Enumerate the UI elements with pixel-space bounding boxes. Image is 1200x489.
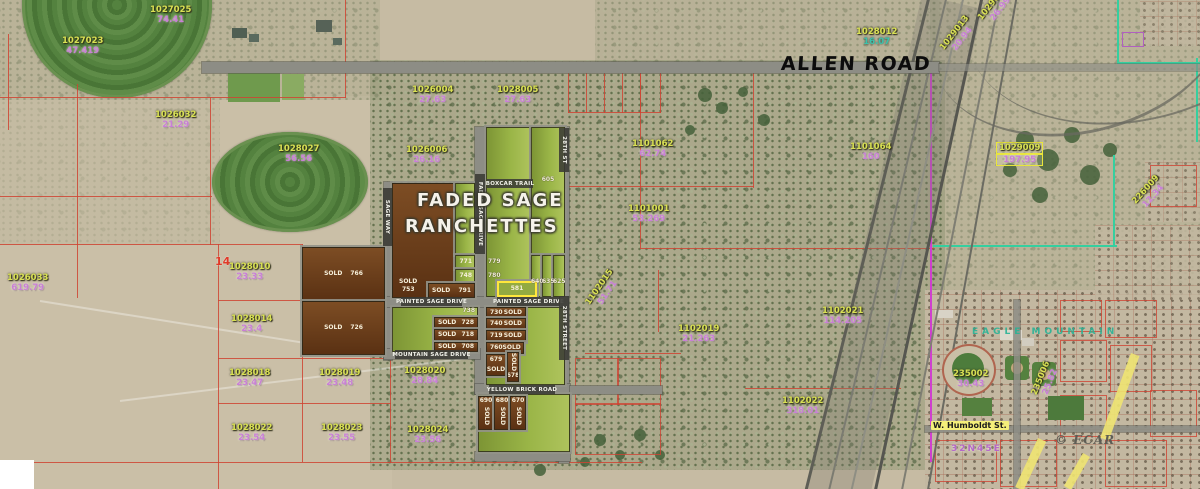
parcel-id: 1027023 xyxy=(62,36,103,46)
street-name: PAINTED SAGE DRIVE xyxy=(493,299,564,305)
parcel-boundary-line xyxy=(586,68,587,113)
street-label: PAINTED SAGE DRIVE xyxy=(401,297,462,306)
parcel-acreage: 21.263 xyxy=(678,334,719,344)
street-label: FADED SAGE DRIVE xyxy=(475,174,485,254)
lot-number: 679 xyxy=(490,357,503,363)
subdivision-lot: 690SOLD xyxy=(478,396,494,430)
parcel-acreage: 23.47 xyxy=(229,378,270,388)
parcel-id: 1026006 xyxy=(406,145,447,155)
parcel-label: 1102022318.01 xyxy=(782,396,823,416)
street-name: PAINTED SAGE DRIVE xyxy=(396,299,467,305)
parcel-label: 102802423.56 xyxy=(407,425,448,445)
parcel-acreage: 30.43 xyxy=(953,379,989,389)
road xyxy=(939,64,1200,71)
road xyxy=(570,386,662,394)
lot-number: 748 xyxy=(459,273,472,279)
parcel-boundary-line xyxy=(640,68,641,113)
parcel-id: 1026004 xyxy=(412,85,453,95)
subdivision-lot: 730SOLD xyxy=(486,307,526,318)
parcel-id: 1028020 xyxy=(404,366,445,376)
parcel-id: 1028027 xyxy=(278,144,319,154)
subdivision-lot: 670SOLD xyxy=(510,396,526,430)
subdivision-lot: SOLD766 xyxy=(302,247,385,301)
parcel-acreage: 197.95 xyxy=(996,154,1043,166)
lot-number: 728 xyxy=(461,320,474,326)
farm-building xyxy=(316,20,332,32)
subdivision-title-line1: FADED SAGE xyxy=(417,190,564,211)
parcel-label: 110100153.269 xyxy=(628,204,669,224)
farm-building xyxy=(249,34,259,42)
parcel-acreage: 53.269 xyxy=(628,214,669,224)
subdivision-lot: SOLD718 xyxy=(434,329,478,341)
parcel-boundary-line xyxy=(658,270,659,332)
street-label: BOXCAR TRAIL xyxy=(487,179,533,188)
tree xyxy=(758,114,770,126)
parcel-boundary-line xyxy=(753,70,754,188)
tree xyxy=(685,125,695,135)
sold-label: SOLD xyxy=(504,321,522,327)
parcel-id: 1029009 xyxy=(996,142,1043,154)
parcel-label: 102802323.55 xyxy=(321,423,362,443)
parcel-label: 102801216.07 xyxy=(856,27,897,47)
parcel-boundary-line xyxy=(0,196,212,197)
parcel-acreage: 27.63 xyxy=(497,95,538,105)
street-label: MOUNTAIN SAGE DRIVE xyxy=(395,350,468,359)
lot-number: 780 xyxy=(488,273,508,279)
parcel-label: 102802223.54 xyxy=(231,423,272,443)
sold-label: SOLD xyxy=(399,279,417,285)
farm-building xyxy=(333,38,342,45)
parcel-boundary-line xyxy=(218,403,391,404)
parcel-boundary-line xyxy=(0,462,642,463)
parcel-boundary-rect xyxy=(1060,340,1107,382)
lot-number: 718 xyxy=(461,332,474,338)
parcel-id: 1028018 xyxy=(229,368,270,378)
street-label: PAINTED SAGE DRIVE xyxy=(497,297,560,306)
lot-number: 678 xyxy=(507,373,519,379)
street-name: BOXCAR TRAIL xyxy=(486,181,535,187)
sold-label: SOLD xyxy=(483,407,489,425)
street-name: MOUNTAIN SAGE DRIVE xyxy=(392,352,470,358)
sold-label: SOLD xyxy=(438,332,456,338)
tree xyxy=(698,88,712,102)
parcel-label: 1026033619.79 xyxy=(7,273,48,293)
parcel-acreage: 21.29 xyxy=(155,120,196,130)
lot-number: 625 xyxy=(553,279,565,285)
sold-label: SOLD xyxy=(487,367,505,373)
parcel-acreage: 27.63 xyxy=(412,95,453,105)
subdivision-lot: 680SOLD xyxy=(494,396,510,430)
lot-number: 690 xyxy=(480,398,493,404)
street-label: YELLOW BRICK ROAD xyxy=(489,385,555,394)
parcel-id: 1102019 xyxy=(678,324,719,334)
parcel-boundary-line xyxy=(0,97,346,98)
sold-label: SOLD xyxy=(503,345,521,351)
lot-number: 779 xyxy=(488,259,508,265)
parcel-acreage: 114.205 xyxy=(822,316,863,326)
street-label: 28TH ST xyxy=(559,128,569,172)
parcel-boundary-line xyxy=(660,68,661,113)
subdivision-title-line2: RANCHETTES xyxy=(405,216,559,237)
parcel-label: 102801823.47 xyxy=(229,368,270,388)
subdivision-lot xyxy=(553,255,565,297)
lot-number: 738 xyxy=(448,308,475,314)
parcel-boundary-line xyxy=(210,97,211,245)
lot-number: 605 xyxy=(531,177,565,183)
parcel-acreage: 23.56 xyxy=(407,435,448,445)
street-name: 28TH ST xyxy=(561,136,567,164)
lot-number: 771 xyxy=(459,259,472,265)
parcel-id: 1028014 xyxy=(231,314,272,324)
parcel-id: 1102021 xyxy=(822,306,863,316)
tree xyxy=(716,102,728,114)
parcel-label: 102801023.33 xyxy=(229,262,270,282)
map-canvas[interactable]: ALLEN ROAD FADED SAGE RANCHETTES EAGLE M… xyxy=(0,0,1200,489)
subdivision-lot: 771 xyxy=(455,255,475,269)
subdivision-lot: SOLD726 xyxy=(302,301,385,355)
parcel-acreage: 619.79 xyxy=(7,283,48,293)
lot-number: 730 xyxy=(490,310,503,316)
parcel-acreage: 23.4 xyxy=(231,324,272,334)
parcel-id: 1028022 xyxy=(231,423,272,433)
school-building xyxy=(1022,338,1034,346)
parcel-acreage: 47.419 xyxy=(62,46,103,56)
lot-number: 753 xyxy=(402,287,415,293)
street-label: 28TH STREET xyxy=(559,296,569,360)
parcel-boundary-line xyxy=(390,358,391,462)
parcel-id: 1101064 xyxy=(850,142,891,152)
subdivision-lot xyxy=(542,255,553,297)
parcel-boundary-line xyxy=(77,84,78,298)
parcel-label: 102802756.56 xyxy=(278,144,319,164)
parcel-boundary-line xyxy=(565,186,754,187)
parcel-boundary-line xyxy=(345,0,346,98)
parcel-acreage: 318.01 xyxy=(782,406,823,416)
parcel-boundary-line xyxy=(568,112,661,113)
parcel-boundary-rect xyxy=(1105,440,1167,487)
parcel-boundary-line xyxy=(218,358,391,359)
sold-label: SOLD xyxy=(432,288,450,294)
ecar-watermark: © ECAR xyxy=(1055,433,1115,447)
lot-number: 719 xyxy=(490,333,503,339)
parcel-label: 102802028.84 xyxy=(404,366,445,386)
road xyxy=(475,452,570,461)
parcel-id: 1028024 xyxy=(407,425,448,435)
tree xyxy=(534,464,546,476)
parcel-acreage: 23.33 xyxy=(229,272,270,282)
parcel-boundary-line xyxy=(585,353,681,354)
sold-label: SOLD xyxy=(438,320,456,326)
parcel-id: 1026032 xyxy=(155,110,196,120)
parcel-id: 1027025 xyxy=(150,5,191,15)
parcel-label: 1029009197.95 xyxy=(996,142,1043,166)
sold-label: SOLD xyxy=(504,310,522,316)
lot-number: 791 xyxy=(458,288,471,294)
parcel-acreage: 74.41 xyxy=(150,15,191,25)
parcel-id: 1028019 xyxy=(319,368,360,378)
lot-number: 640 xyxy=(531,279,542,285)
parcel-acreage: 56.56 xyxy=(278,154,319,164)
parcel-boundary-rect xyxy=(575,358,619,405)
sold-label: SOLD xyxy=(324,271,342,277)
subdivision-lot: 748 xyxy=(455,269,475,283)
boundary-line-teal xyxy=(1113,155,1115,247)
parcel-id: 1102022 xyxy=(782,396,823,406)
subdivision-lot: 719SOLD xyxy=(486,330,526,342)
parcel-label: 102801923.48 xyxy=(319,368,360,388)
parcel-boundary-rect xyxy=(617,358,661,405)
parcel-id: 1101062 xyxy=(632,139,673,149)
lot-number: 760 xyxy=(490,345,503,351)
parcel-id: 1028005 xyxy=(497,85,538,95)
parcel-id: 1028010 xyxy=(229,262,270,272)
sold-label: SOLD xyxy=(499,407,505,425)
humboldt-street-label: W. Humboldt St. xyxy=(931,421,1009,430)
tree xyxy=(1080,165,1100,185)
parcel-label: 102800527.63 xyxy=(497,85,538,105)
parcel-boundary-line xyxy=(218,244,219,489)
sports-field xyxy=(1048,396,1084,420)
parcel-acreage: 23.54 xyxy=(231,433,272,443)
parcel-label: 110106262.74 xyxy=(632,139,673,159)
parcel-id: 1028012 xyxy=(856,27,897,37)
lot-number: 680 xyxy=(496,398,509,404)
allen-road-label: ALLEN ROAD xyxy=(780,53,932,75)
subdivision-lot: 740SOLD xyxy=(486,318,526,330)
map-edge-notch xyxy=(0,460,34,489)
parcel-boundary-line xyxy=(218,300,303,301)
parcel-acreage: 23.48 xyxy=(319,378,360,388)
lot-number: 726 xyxy=(350,325,363,331)
parcel-boundary-line xyxy=(8,34,9,130)
parcel-id: 235002 xyxy=(953,369,989,379)
boundary-line-teal xyxy=(933,245,1117,247)
parcel-boundary-line xyxy=(622,68,623,113)
parcel-acreage: 23.55 xyxy=(321,433,362,443)
sold-label: SOLD xyxy=(510,353,516,371)
parcel-boundary-line xyxy=(0,244,303,245)
subdivision-lot: SOLD791 xyxy=(428,283,475,298)
parcel-id: 1028023 xyxy=(321,423,362,433)
subdivision-lot: SOLD728 xyxy=(434,317,478,329)
tree xyxy=(1032,187,1048,203)
parcel-boundary-line xyxy=(604,68,605,113)
parcel-id: 1026033 xyxy=(7,273,48,283)
lot-number: 635 xyxy=(542,279,553,285)
parcel-label: 23500230.43 xyxy=(953,369,989,389)
parcel-acreage: 26.16 xyxy=(406,155,447,165)
parcel-acreage: 16.07 xyxy=(856,37,897,47)
street-name: 28TH STREET xyxy=(561,306,567,350)
parcel-boundary-line xyxy=(568,68,569,113)
subdivision-lot: SOLD678 xyxy=(507,352,519,382)
parcel-label: 102702574.41 xyxy=(150,5,191,25)
lot-number: 670 xyxy=(512,398,525,404)
farm-building xyxy=(232,28,247,38)
town-area-north xyxy=(1095,225,1200,300)
eagle-mountain-label: EAGLE MOUNTAIN xyxy=(972,327,1118,337)
parcel-label: 110201921.263 xyxy=(678,324,719,344)
parcel-label: 102603221.29 xyxy=(155,110,196,130)
sports-field xyxy=(962,398,992,416)
parcel-label: 102600626.16 xyxy=(406,145,447,165)
parcel-boundary-rect xyxy=(575,403,661,455)
parcel-label: 102702347.419 xyxy=(62,36,103,56)
parcel-acreage: 28.84 xyxy=(404,376,445,386)
street-name: YELLOW BRICK ROAD xyxy=(487,387,558,393)
township-range-label: 32N45E xyxy=(951,444,1002,454)
street-name: SAGE WAY xyxy=(385,200,391,234)
street-label: SAGE WAY xyxy=(383,188,392,246)
sold-label: SOLD xyxy=(324,325,342,331)
subdivision-lot: 679SOLD xyxy=(486,354,506,376)
lot-number: 581 xyxy=(511,286,524,292)
parcel-acreage: 62.74 xyxy=(632,149,673,159)
parcel-label: 1102021114.205 xyxy=(822,306,863,326)
lot-number: 740 xyxy=(490,321,503,327)
tree xyxy=(738,87,748,97)
parcel-label: 102801423.4 xyxy=(231,314,272,334)
lot-number: 766 xyxy=(350,271,363,277)
parcel-id: 1101001 xyxy=(628,204,669,214)
sold-label: SOLD xyxy=(504,333,522,339)
sold-label: SOLD xyxy=(515,407,521,425)
parcel-label: 1101064160 xyxy=(850,142,891,162)
parcel-label: 102600427.63 xyxy=(412,85,453,105)
parcel-acreage: 160 xyxy=(850,152,891,162)
